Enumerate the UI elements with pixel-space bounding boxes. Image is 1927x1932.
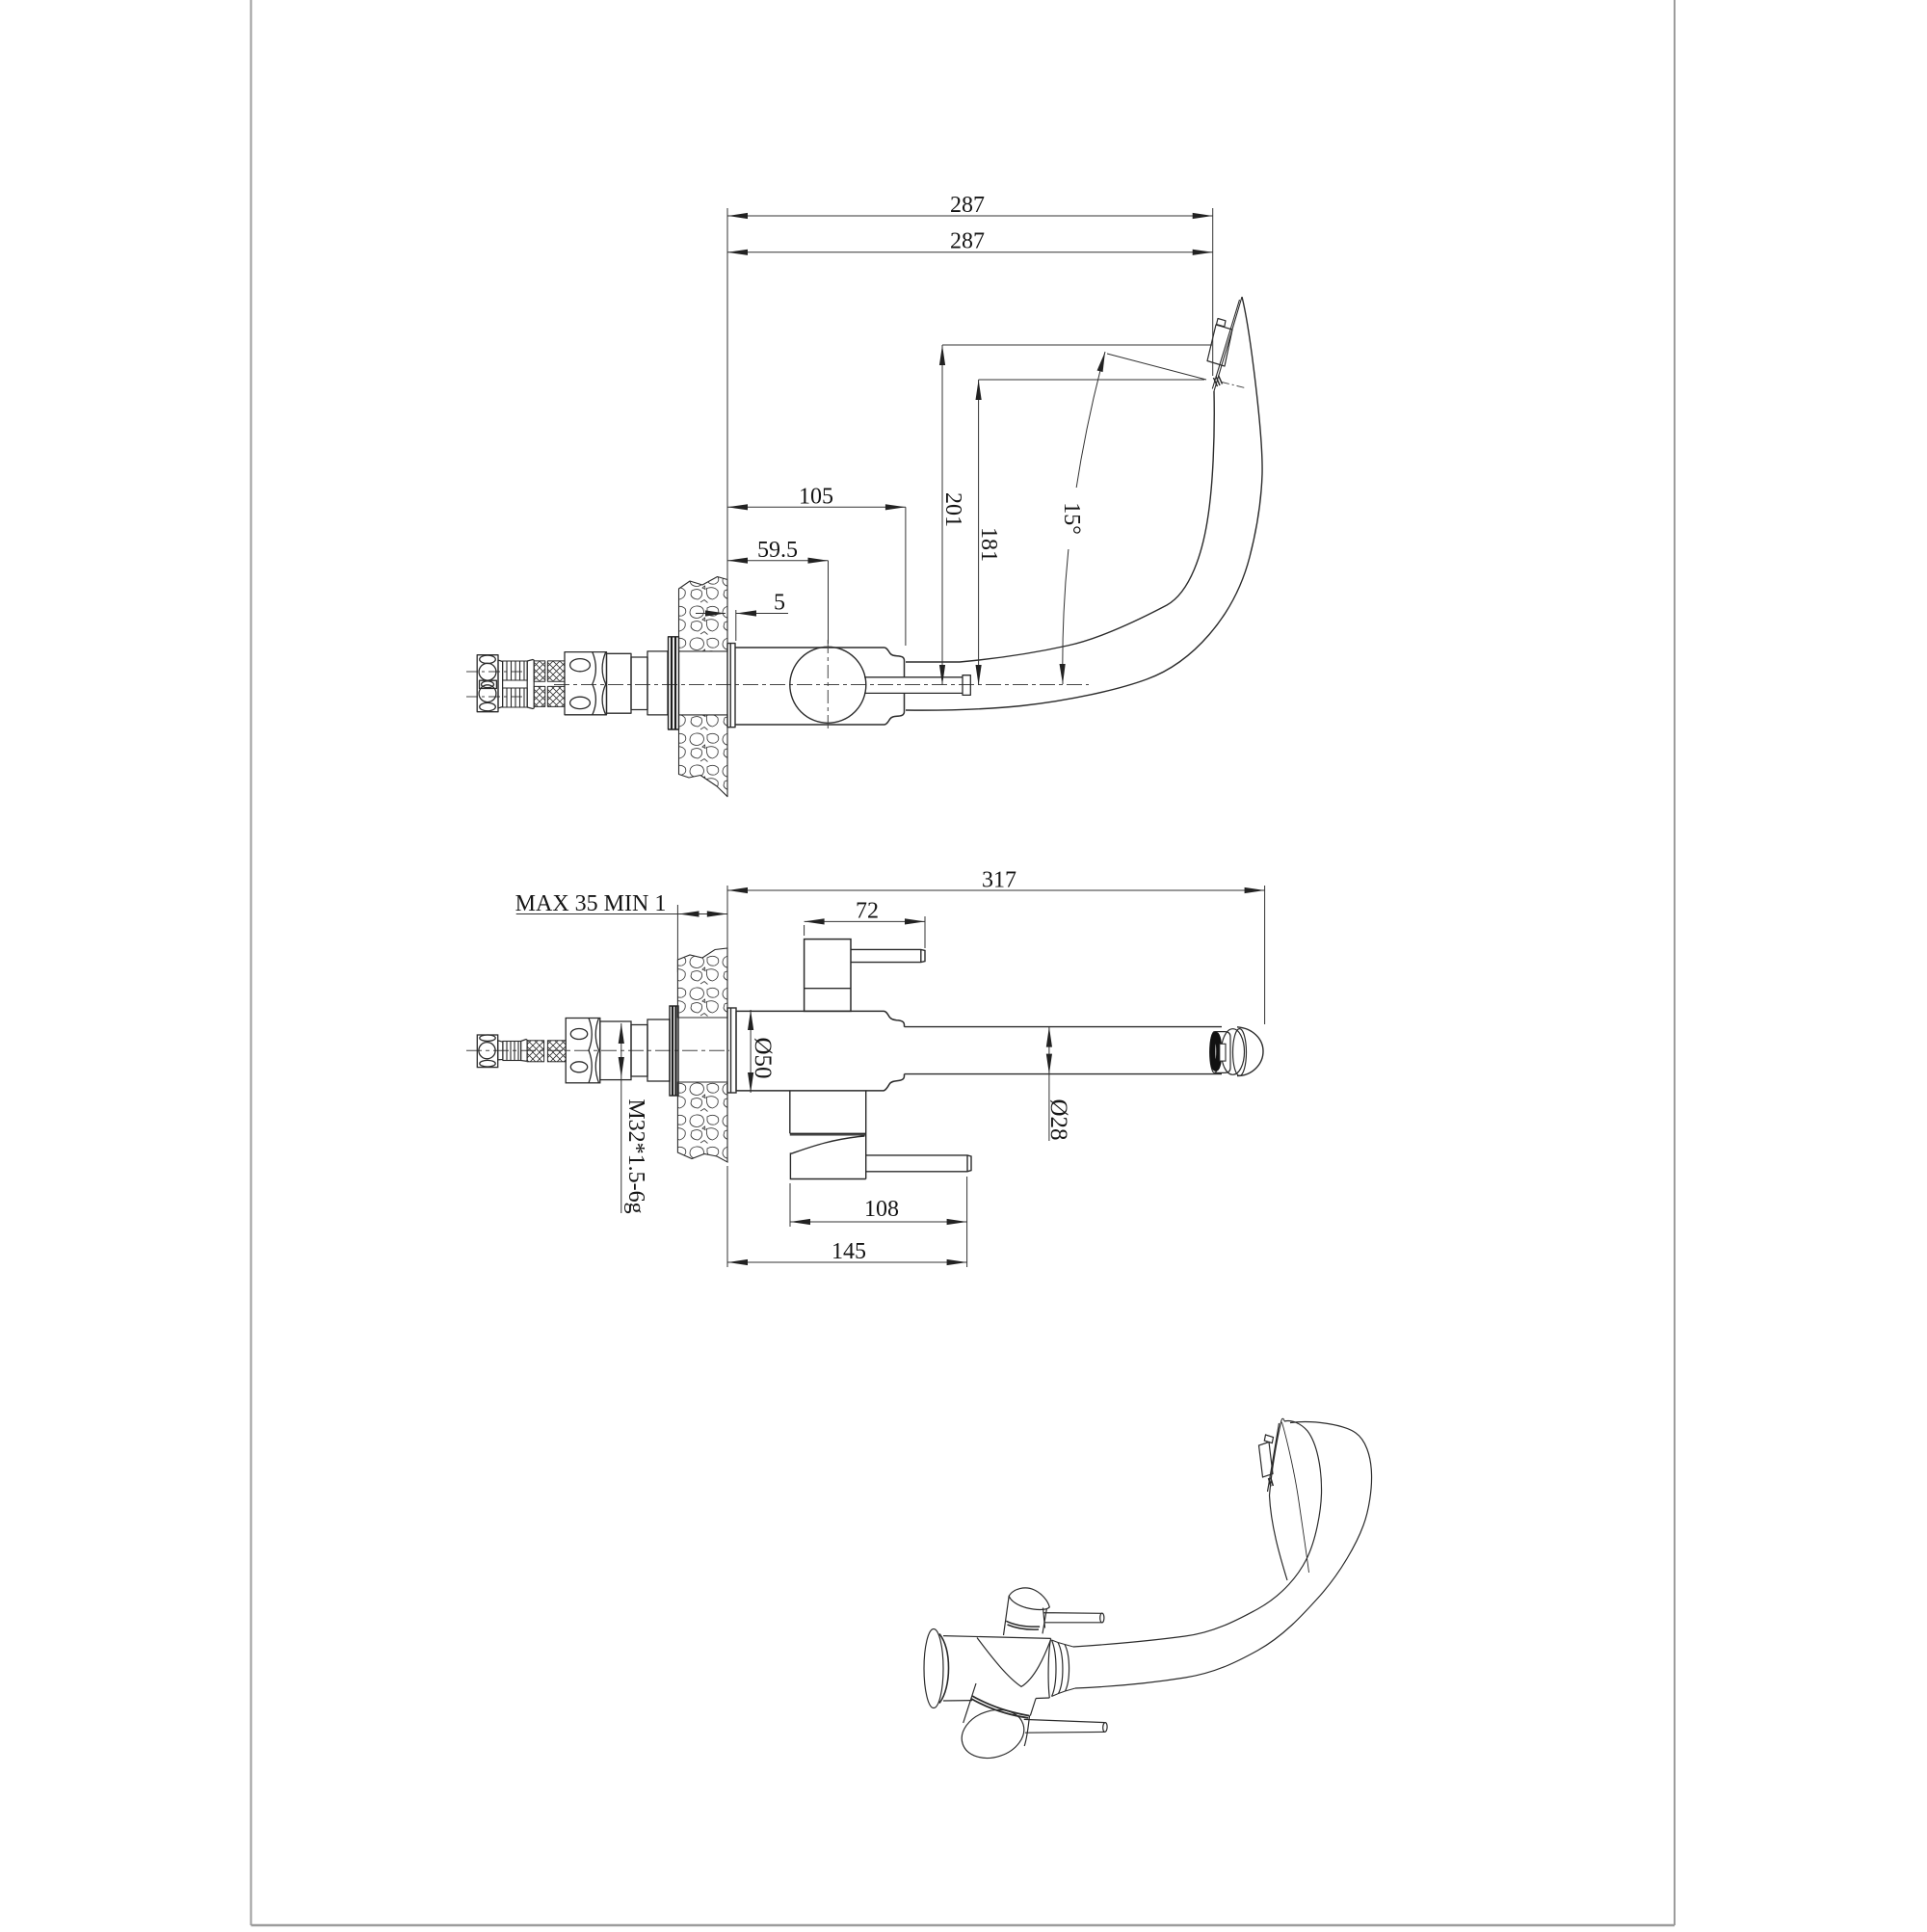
svg-text:108: 108	[864, 1197, 899, 1222]
svg-text:M32*1.5-6g: M32*1.5-6g	[623, 1098, 648, 1213]
svg-text:201: 201	[940, 492, 965, 527]
svg-text:287: 287	[950, 229, 985, 254]
svg-text:145: 145	[832, 1239, 866, 1264]
svg-text:317: 317	[982, 868, 1016, 893]
svg-text:287: 287	[950, 193, 985, 218]
svg-text:MAX 35 MIN 1: MAX 35 MIN 1	[515, 891, 667, 916]
svg-text:Ø50: Ø50	[750, 1037, 776, 1078]
svg-text:15°: 15°	[1059, 502, 1084, 535]
svg-text:105: 105	[799, 485, 833, 510]
svg-text:59.5: 59.5	[757, 538, 798, 563]
svg-text:Ø28: Ø28	[1045, 1098, 1071, 1140]
svg-text:5: 5	[774, 591, 785, 616]
svg-text:181: 181	[976, 527, 1001, 562]
svg-text:72: 72	[856, 899, 879, 924]
